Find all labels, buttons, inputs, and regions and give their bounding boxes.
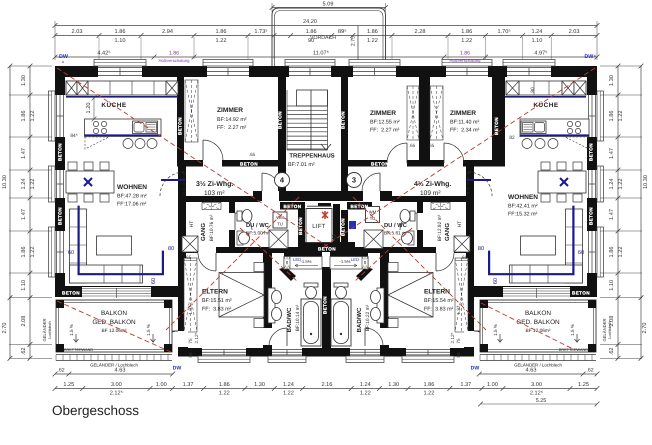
svg-text:WM: WM [369, 210, 377, 215]
svg-text:1.22: 1.22 [423, 391, 434, 397]
svg-text:1.22: 1.22 [283, 391, 294, 397]
svg-text:BF:47.28 m²: BF:47.28 m² [117, 194, 147, 200]
svg-text:ZIMMER: ZIMMER [450, 110, 476, 117]
svg-text:1.86: 1.86 [367, 29, 378, 35]
svg-text:BETON: BETON [589, 143, 594, 161]
svg-text:DW: DW [471, 366, 480, 372]
svg-text:58: 58 [188, 352, 193, 358]
svg-text:1.47: 1.47 [21, 148, 27, 159]
svg-text:BF:11.40 m²: BF:11.40 m² [450, 120, 479, 126]
svg-text:BF:10.76 m²: BF:10.76 m² [209, 214, 215, 241]
svg-text:WOHNEN: WOHNEN [508, 194, 538, 201]
svg-text:2.12⁵: 2.12⁵ [110, 391, 123, 397]
svg-text:4.63: 4.63 [115, 368, 126, 374]
svg-text:BF:7.01 m²: BF:7.01 m² [288, 162, 315, 168]
svg-text:80: 80 [530, 87, 536, 93]
svg-text:2.08: 2.08 [21, 316, 27, 327]
svg-text:FF: 2.27 m²: FF: 2.27 m² [217, 125, 247, 131]
svg-text:.65: .65 [461, 255, 468, 261]
svg-text:FF: 3.83 m²: FF: 3.83 m² [202, 307, 232, 313]
svg-text:WOHNEN: WOHNEN [117, 184, 147, 191]
svg-text:89⁵: 89⁵ [338, 29, 347, 35]
svg-text:4.63: 4.63 [526, 368, 537, 374]
svg-text:FF: 2.34 m²: FF: 2.34 m² [450, 128, 480, 134]
svg-text:4.42⁵: 4.42⁵ [97, 51, 110, 57]
svg-text:75: 75 [188, 338, 193, 344]
svg-text:BF:5.00 m²: BF:5.00 m² [246, 231, 270, 237]
svg-text:1.24: 1.24 [531, 29, 542, 35]
svg-text:Holzverschalung: Holzverschalung [159, 58, 191, 63]
svg-text:GED. BALKON: GED. BALKON [516, 319, 560, 326]
svg-text:BETON: BETON [58, 143, 63, 161]
svg-text:1.22: 1.22 [30, 247, 36, 258]
svg-text:1.73⁵: 1.73⁵ [254, 29, 267, 35]
svg-text:1.47: 1.47 [609, 148, 615, 159]
svg-text:1.22: 1.22 [30, 179, 36, 190]
svg-text:10.30: 10.30 [2, 175, 8, 189]
svg-text:3.00: 3.00 [111, 382, 122, 388]
svg-text:1.5 %: 1.5 % [146, 324, 151, 336]
svg-text:BETON: BETON [341, 111, 346, 129]
svg-text:ZIMMER: ZIMMER [217, 107, 243, 114]
svg-text:GANG: GANG [444, 223, 451, 241]
svg-text:2.12⁵: 2.12⁵ [194, 332, 199, 343]
svg-text:60: 60 [151, 278, 157, 284]
svg-text:KÜCHE: KÜCHE [101, 101, 126, 109]
svg-text:.65: .65 [409, 143, 416, 148]
svg-text:1.47: 1.47 [21, 209, 27, 220]
svg-text:1.10: 1.10 [21, 280, 27, 291]
svg-text:1.5 %: 1.5 % [493, 324, 498, 336]
svg-text:BF:15.54 m²: BF:15.54 m² [424, 298, 454, 304]
svg-text:GED. BALKON: GED. BALKON [92, 319, 136, 326]
svg-text:BETON: BETON [572, 291, 590, 296]
svg-text:DU / WC: DU / WC [384, 222, 408, 229]
svg-text:.65: .65 [185, 255, 192, 261]
svg-text:.65: .65 [249, 152, 256, 157]
svg-text:DW: DW [173, 366, 182, 372]
svg-text:Obergeschoss: Obergeschoss [52, 403, 139, 418]
svg-text:1.86: 1.86 [423, 382, 434, 388]
svg-text:10.30: 10.30 [643, 175, 649, 189]
svg-text:5.25: 5.25 [536, 398, 547, 404]
svg-text:60: 60 [68, 250, 74, 256]
svg-text:1.22: 1.22 [461, 38, 472, 44]
svg-text:1.5 %: 1.5 % [570, 324, 575, 336]
svg-text:1.22: 1.22 [618, 111, 624, 122]
svg-text:FF:17.06 m²: FF:17.06 m² [117, 202, 147, 208]
svg-text:ZIMMER: ZIMMER [370, 110, 396, 117]
svg-text:BETON: BETON [589, 207, 594, 225]
svg-text:GANG: GANG [200, 223, 207, 241]
svg-text:1.30: 1.30 [21, 75, 27, 86]
svg-text:-1.5%: -1.5% [301, 259, 312, 264]
svg-text:-1.5%: -1.5% [340, 259, 351, 264]
svg-text:Holzverschalung: Holzverschalung [450, 58, 482, 63]
svg-text:GELÄNDER: GELÄNDER [602, 318, 607, 341]
svg-text:1.47: 1.47 [609, 209, 615, 220]
svg-text:BETON: BETON [318, 246, 336, 251]
svg-text:75: 75 [456, 338, 461, 344]
svg-text:FF: 2.27 m²: FF: 2.27 m² [370, 128, 400, 134]
svg-text:109 m²: 109 m² [420, 190, 441, 197]
svg-text:1.22: 1.22 [618, 247, 624, 258]
svg-text:BALKON: BALKON [101, 310, 127, 317]
svg-text:24.20: 24.20 [303, 19, 317, 25]
svg-text:BF:12.92 m²: BF:12.92 m² [437, 214, 443, 241]
svg-text:1.22: 1.22 [618, 179, 624, 190]
svg-text:GELÄNDER / Lochblech: GELÄNDER / Lochblech [514, 363, 562, 368]
svg-text:1.37: 1.37 [188, 305, 193, 314]
svg-text:BETON: BETON [371, 161, 389, 166]
svg-text:BAD/WC: BAD/WC [356, 307, 363, 332]
svg-text:1.20: 1.20 [86, 103, 92, 114]
svg-text:1.86: 1.86 [21, 111, 27, 122]
svg-text:80: 80 [478, 246, 484, 252]
svg-text:1.24: 1.24 [360, 382, 371, 388]
svg-text:BETON: BETON [284, 204, 302, 209]
svg-text:BF 12.06m²: BF 12.06m² [525, 328, 550, 334]
svg-text:BALKON: BALKON [525, 310, 551, 317]
svg-text:Lochblech: Lochblech [48, 321, 52, 338]
svg-text:60: 60 [578, 250, 584, 256]
svg-text:1.86: 1.86 [609, 111, 615, 122]
svg-text:1.24: 1.24 [283, 382, 294, 388]
svg-text:BETON: BETON [298, 217, 303, 235]
svg-text:82: 82 [509, 135, 515, 141]
svg-text:BRETTERWAND: BRETTERWAND [64, 348, 93, 352]
svg-text:.62: .62 [586, 368, 593, 374]
svg-text:1.86: 1.86 [115, 29, 126, 35]
svg-text:2.94: 2.94 [162, 29, 173, 35]
svg-text:2.03: 2.03 [72, 29, 83, 35]
svg-text:BETON: BETON [323, 296, 328, 314]
svg-text:HT: HT [189, 221, 195, 228]
svg-text:1.00: 1.00 [156, 382, 167, 388]
svg-text:BAD/WC: BAD/WC [286, 307, 293, 332]
svg-text:BF:42.41 m²: BF:42.41 m² [508, 204, 538, 210]
svg-text:BETON: BETON [240, 161, 258, 166]
svg-text:BETON: BETON [178, 117, 183, 135]
svg-text:1.37: 1.37 [460, 382, 471, 388]
svg-text:BETON: BETON [351, 204, 369, 209]
svg-text:FF: 3.83 m²: FF: 3.83 m² [424, 307, 454, 313]
svg-text:DW⁴: DW⁴ [584, 54, 596, 60]
svg-text:1.10: 1.10 [531, 38, 542, 44]
svg-text:1.22: 1.22 [30, 111, 36, 122]
svg-text:1.5 %: 1.5 % [69, 324, 74, 336]
svg-text:BF:12.55 m²: BF:12.55 m² [370, 120, 400, 126]
svg-text:BETON: BETON [62, 291, 80, 296]
svg-text:LIFT: LIFT [312, 223, 326, 230]
svg-text:FF:15.32 m²: FF:15.32 m² [508, 212, 538, 218]
svg-text:1.30: 1.30 [388, 382, 399, 388]
svg-text:KÜCHE: KÜCHE [533, 101, 558, 109]
svg-text:DU / WC: DU / WC [246, 222, 270, 229]
svg-text:1.00: 1.00 [487, 382, 498, 388]
svg-text:4.97⁵: 4.97⁵ [534, 51, 547, 57]
svg-text:2.16: 2.16 [321, 382, 332, 388]
svg-text:VORDACH: VORDACH [310, 35, 336, 41]
svg-text:ELTERN: ELTERN [424, 289, 450, 296]
svg-text:1.10: 1.10 [115, 38, 126, 44]
svg-text:GELÄNDER: GELÄNDER [42, 318, 47, 341]
svg-text:11.07⁵: 11.07⁵ [313, 51, 329, 57]
svg-text:1.22: 1.22 [367, 38, 378, 44]
svg-text:BF:10.14 m²: BF:10.14 m² [295, 304, 301, 331]
svg-text:.62: .62 [57, 368, 64, 374]
svg-text:2.70: 2.70 [2, 323, 8, 334]
svg-text:1.86: 1.86 [609, 247, 615, 258]
svg-text:2.08: 2.08 [609, 316, 615, 327]
svg-text:.62: .62 [609, 347, 615, 355]
svg-text:1.86: 1.86 [460, 51, 470, 57]
svg-text:LED: LED [351, 257, 359, 262]
svg-text:.62: .62 [21, 347, 27, 355]
svg-text:1.37: 1.37 [183, 382, 194, 388]
svg-text:2.12⁵: 2.12⁵ [450, 332, 455, 343]
svg-text:3½ Zi-Whg.: 3½ Zi-Whg. [196, 180, 233, 188]
svg-text:1.22: 1.22 [219, 391, 230, 397]
svg-text:1.24: 1.24 [609, 179, 615, 190]
svg-text:1.22: 1.22 [216, 38, 227, 44]
svg-text:1.86: 1.86 [461, 29, 472, 35]
svg-text:1.37: 1.37 [456, 305, 461, 314]
svg-text:1.30: 1.30 [609, 75, 615, 86]
svg-text:BF:14.92 m²: BF:14.92 m² [217, 117, 247, 123]
svg-text:BRETTERWAND: BRETTERWAND [559, 348, 588, 352]
svg-text:1.86: 1.86 [21, 247, 27, 258]
svg-text:3: 3 [352, 176, 356, 185]
svg-text:80: 80 [168, 246, 174, 252]
svg-text:5.09: 5.09 [323, 2, 334, 8]
svg-text:BETON: BETON [278, 111, 283, 129]
svg-text:BF:10.22 m²: BF:10.22 m² [365, 304, 371, 331]
svg-text:1.25: 1.25 [63, 382, 74, 388]
svg-text:2.12⁵: 2.12⁵ [530, 391, 543, 397]
svg-text:2.28: 2.28 [415, 29, 426, 35]
svg-text:BETON: BETON [58, 207, 63, 225]
svg-text:60: 60 [493, 278, 499, 284]
svg-text:58: 58 [456, 352, 461, 358]
svg-text:3.00: 3.00 [531, 382, 542, 388]
svg-text:2.03: 2.03 [569, 29, 580, 35]
svg-text:.65: .65 [428, 143, 435, 148]
svg-text:1.86: 1.86 [219, 382, 230, 388]
svg-text:2.70: 2.70 [642, 323, 648, 334]
svg-text:103 m²: 103 m² [204, 190, 225, 197]
svg-text:1.24: 1.24 [21, 179, 27, 190]
svg-text:1.22: 1.22 [360, 391, 371, 397]
svg-text:1.86: 1.86 [169, 51, 179, 57]
svg-text:HT: HT [457, 221, 463, 228]
svg-text:TU: TU [277, 222, 283, 227]
svg-text:1.30: 1.30 [254, 382, 265, 388]
svg-text:BF:15.51 m²: BF:15.51 m² [202, 298, 232, 304]
svg-text:1.25: 1.25 [578, 382, 589, 388]
svg-text:84⁵: 84⁵ [70, 133, 77, 139]
svg-text:1.70⁵: 1.70⁵ [497, 29, 510, 35]
svg-text:TREPPENHAUS: TREPPENHAUS [289, 153, 334, 160]
svg-text:1.86: 1.86 [216, 29, 227, 35]
svg-text:1.10: 1.10 [609, 280, 615, 291]
